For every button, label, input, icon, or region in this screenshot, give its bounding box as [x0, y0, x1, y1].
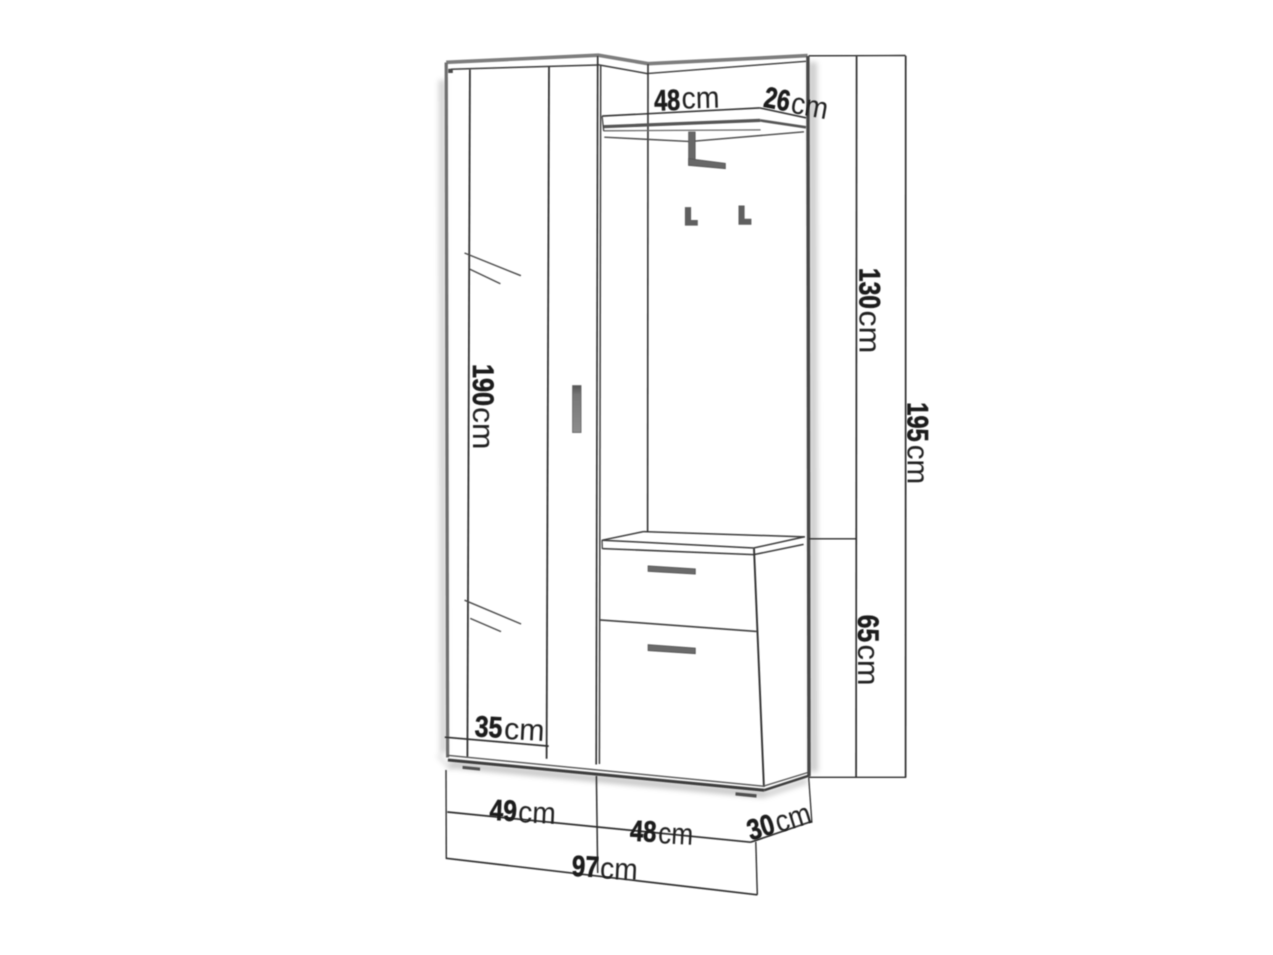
svg-text:cm: cm: [657, 816, 694, 852]
svg-text:cm: cm: [681, 81, 720, 116]
svg-text:97: 97: [571, 850, 600, 884]
svg-text:130: 130: [852, 268, 885, 309]
svg-text:49: 49: [489, 794, 518, 828]
svg-text:cm: cm: [851, 645, 885, 686]
svg-text:190: 190: [466, 364, 499, 406]
svg-text:cm: cm: [503, 712, 545, 748]
svg-text:cm: cm: [789, 86, 832, 126]
svg-text:cm: cm: [852, 310, 886, 353]
svg-text:48: 48: [629, 815, 657, 849]
svg-text:195: 195: [901, 402, 934, 442]
svg-text:cm: cm: [901, 445, 935, 485]
svg-text:48: 48: [654, 84, 681, 118]
svg-text:cm: cm: [599, 851, 638, 887]
svg-text:65: 65: [851, 615, 884, 642]
svg-text:cm: cm: [517, 795, 556, 831]
svg-text:35: 35: [474, 710, 503, 744]
svg-text:cm: cm: [466, 407, 500, 450]
